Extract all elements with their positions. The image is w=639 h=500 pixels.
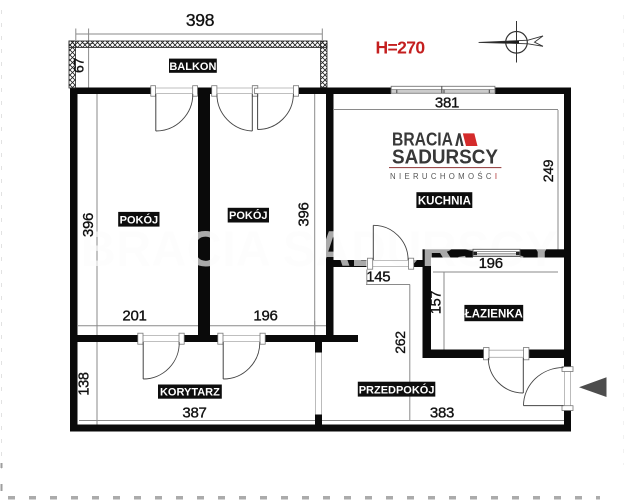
svg-text:KUCHNIA: KUCHNIA <box>418 196 471 208</box>
svg-text:396: 396 <box>295 202 312 226</box>
svg-text:POKÓJ: POKÓJ <box>229 209 268 222</box>
svg-text:POKÓJ: POKÓJ <box>120 213 159 226</box>
svg-text:145: 145 <box>366 269 390 286</box>
svg-text:NIERUCHOMOŚCI: NIERUCHOMOŚCI <box>390 172 497 181</box>
svg-text:157: 157 <box>429 291 445 315</box>
svg-text:398: 398 <box>186 10 214 30</box>
svg-text:262: 262 <box>392 331 408 354</box>
svg-text:201: 201 <box>122 308 146 325</box>
svg-text:383: 383 <box>430 405 454 422</box>
svg-text:SADURSCY: SADURSCY <box>392 146 499 168</box>
svg-text:249: 249 <box>540 159 556 182</box>
svg-text:67: 67 <box>71 58 87 73</box>
svg-text:BALKON: BALKON <box>169 61 216 73</box>
svg-text:ŁAZIENKA: ŁAZIENKA <box>465 308 523 320</box>
svg-text:381: 381 <box>435 95 459 112</box>
svg-text:387: 387 <box>182 405 206 422</box>
svg-text:396: 396 <box>80 213 97 237</box>
svg-text:196: 196 <box>253 308 277 325</box>
svg-text:PRZEDPOKÓJ: PRZEDPOKÓJ <box>359 383 435 396</box>
svg-text:H=270: H=270 <box>376 37 426 57</box>
svg-text:138: 138 <box>77 372 93 396</box>
svg-text:KORYTARZ: KORYTARZ <box>160 387 220 399</box>
svg-text:196: 196 <box>479 255 503 272</box>
